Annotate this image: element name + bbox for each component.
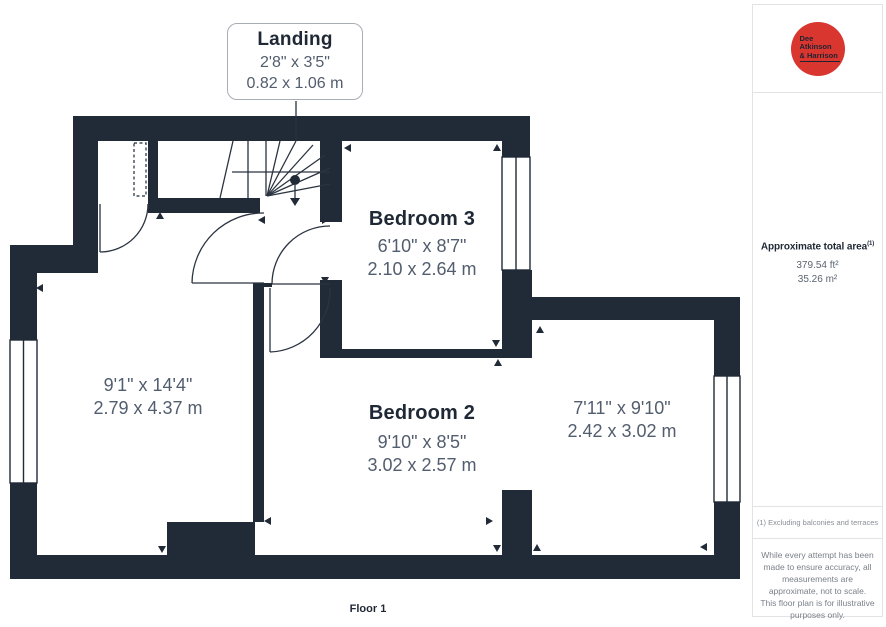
logo-underline bbox=[800, 61, 840, 62]
info-sidebar: Dee Atkinson & Harrison Approximate tota… bbox=[752, 4, 883, 617]
window-left bbox=[10, 340, 37, 483]
total-area-footnote-ref: (1) bbox=[867, 241, 874, 247]
total-area-title: Approximate total area(1) bbox=[753, 241, 882, 252]
floor-label: Floor 1 bbox=[298, 603, 438, 615]
door-bedroom3 bbox=[272, 226, 330, 284]
footnote-text: (1) Excluding balconies and terraces bbox=[757, 518, 878, 527]
direction-arrows bbox=[36, 144, 707, 553]
total-area-metric: 35.26 m² bbox=[753, 274, 882, 285]
landing-title: Landing bbox=[228, 28, 362, 52]
total-area-imperial: 379.54 ft² bbox=[753, 260, 882, 271]
footnote-section: (1) Excluding balconies and terraces bbox=[753, 507, 882, 539]
doors-layer bbox=[100, 204, 330, 352]
logo-section: Dee Atkinson & Harrison bbox=[753, 5, 882, 93]
floorplan-page: Landing 2'8" x 3'5" 0.82 x 1.06 m Bedroo… bbox=[0, 0, 886, 627]
total-area-section: Approximate total area(1) 379.54 ft² 35.… bbox=[753, 93, 882, 507]
windows-layer bbox=[10, 157, 740, 502]
stair-down-arrow bbox=[290, 198, 300, 206]
door-cupboard bbox=[100, 204, 148, 252]
agency-logo: Dee Atkinson & Harrison bbox=[791, 22, 845, 76]
landing-dim-metric: 0.82 x 1.06 m bbox=[228, 73, 362, 94]
landing-callout: Landing 2'8" x 3'5" 0.82 x 1.06 m bbox=[227, 23, 363, 100]
door-left-room bbox=[192, 213, 264, 283]
total-area-title-text: Approximate total area bbox=[761, 241, 867, 252]
disclaimer-section: While every attempt has been made to ens… bbox=[753, 539, 882, 627]
walls-layer bbox=[10, 116, 740, 579]
window-right bbox=[714, 376, 740, 502]
stair-newel-dot bbox=[290, 175, 300, 185]
logo-line3: & Harrison bbox=[800, 52, 845, 61]
cupboard-dashed-outline bbox=[134, 143, 146, 196]
stairs bbox=[220, 141, 330, 206]
window-bedroom3 bbox=[502, 157, 530, 270]
landing-dim-imperial: 2'8" x 3'5" bbox=[228, 52, 362, 73]
disclaimer-text: While every attempt has been made to ens… bbox=[760, 549, 875, 621]
